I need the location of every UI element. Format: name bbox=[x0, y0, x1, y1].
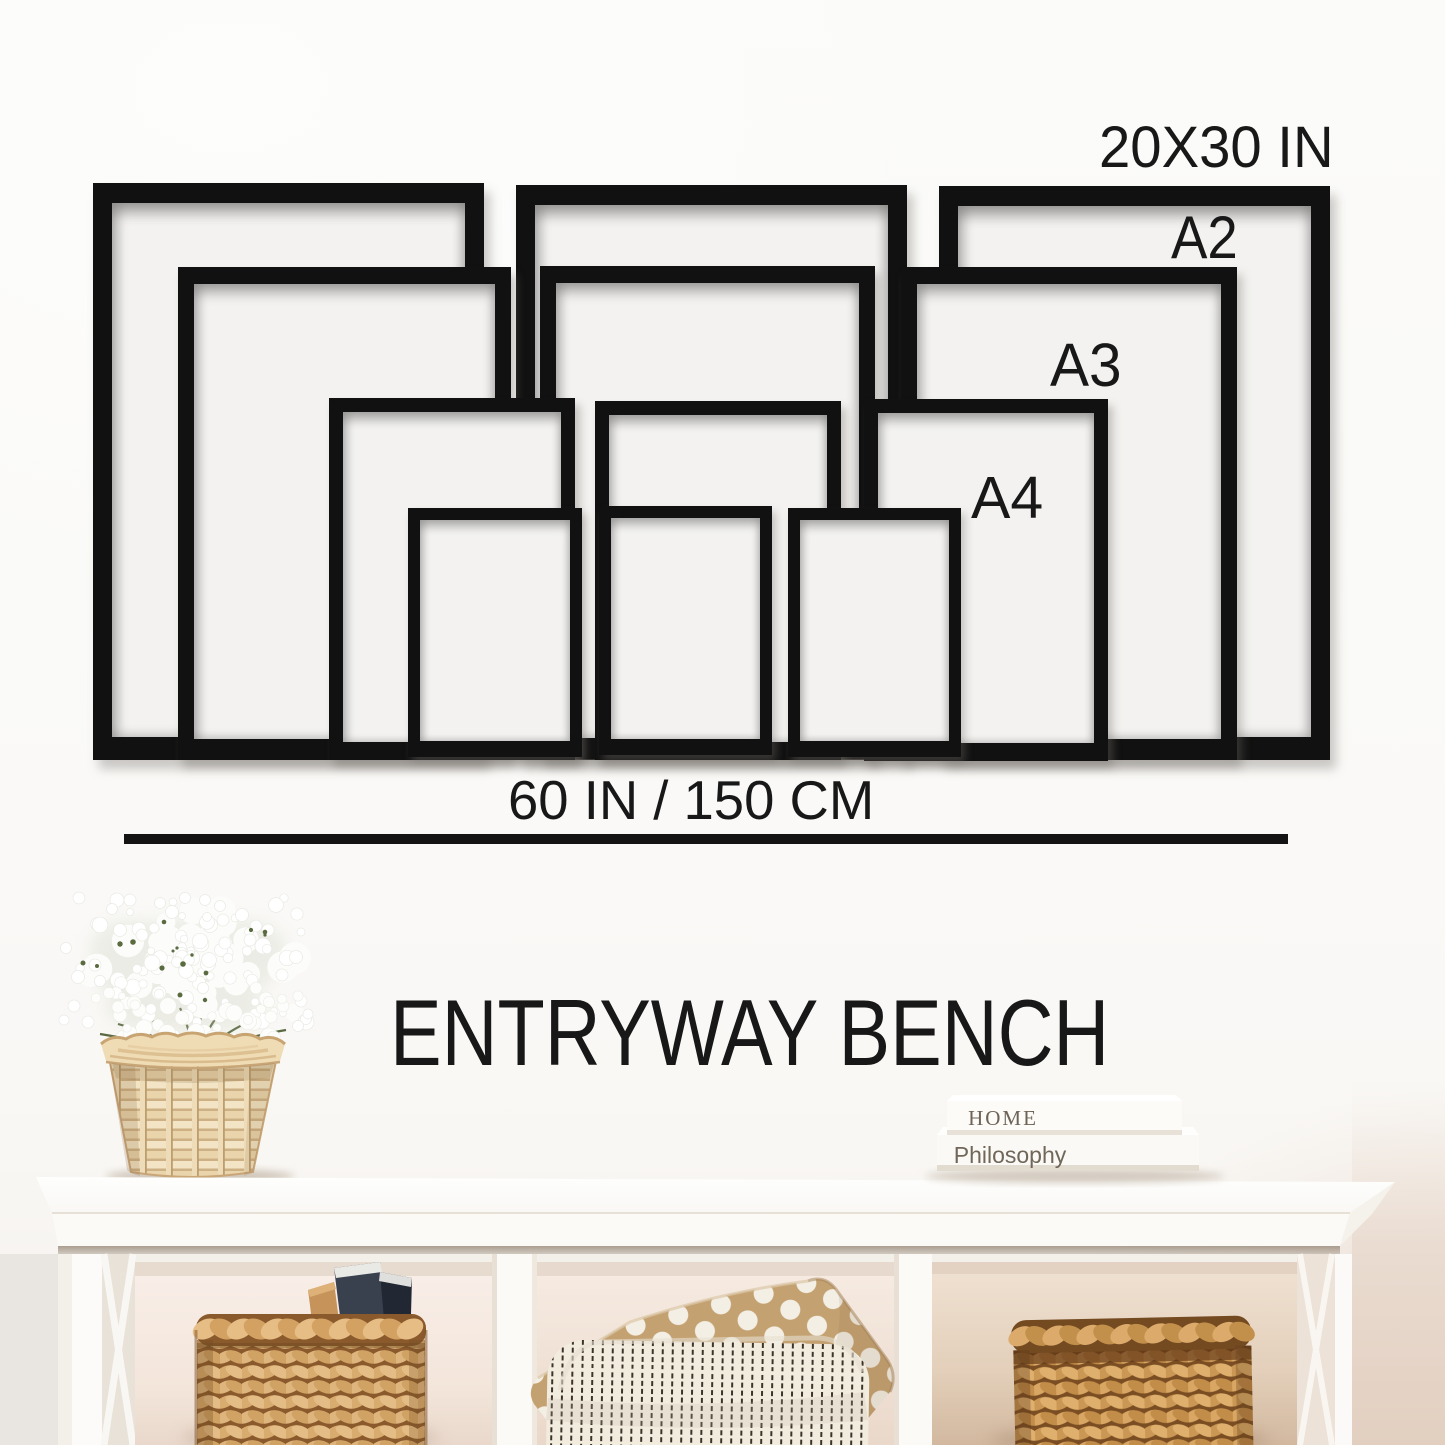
svg-text:Philosophy: Philosophy bbox=[954, 1142, 1067, 1168]
svg-text:HOME: HOME bbox=[968, 1106, 1038, 1130]
